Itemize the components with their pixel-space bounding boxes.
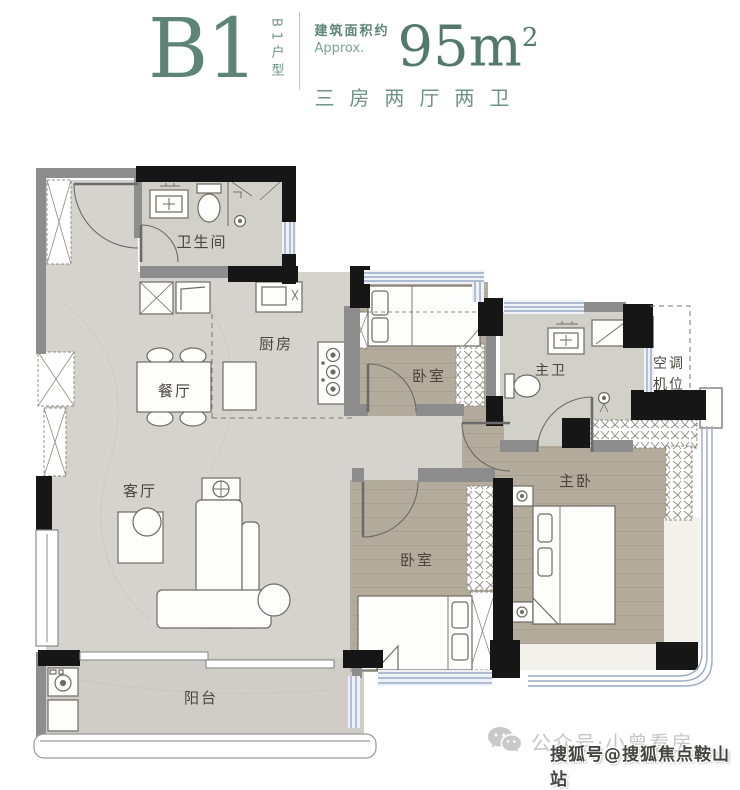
label-ac-line2: 机位: [653, 377, 685, 393]
label-master-bedroom: 主卧: [559, 472, 593, 490]
unit-name: B1: [148, 4, 256, 96]
layout-description: 三房两厅两卫: [314, 82, 538, 111]
label-bedroom-bottom: 卧室: [400, 551, 434, 569]
label-living: 客厅: [123, 482, 157, 500]
sohu-watermark: 搜狐号@搜狐焦点鞍山站: [550, 740, 740, 790]
plan-header: B1 B1户型 建筑面积约 Approx. 95m2 三房两厅两卫: [148, 4, 538, 111]
area-value: 95m2: [397, 10, 538, 76]
living-window: [36, 530, 58, 646]
label-bedroom-top: 卧室: [412, 367, 446, 385]
floor-plan: 卫生间 厨房 餐厅 客厅 阳台 卧室 主卫 主卧 卧室 空调 机位: [0, 150, 740, 768]
area-block: 建筑面积约 Approx. 95m2 三房两厅两卫: [314, 10, 538, 111]
area-label-en: Approx.: [314, 41, 389, 56]
label-ac-line1: 空调: [653, 356, 685, 372]
header-divider: [299, 12, 300, 90]
bedroom-top-bed: [360, 286, 482, 346]
label-balcony: 阳台: [184, 689, 218, 707]
wechat-icon: [487, 726, 523, 756]
label-dining: 餐厅: [158, 382, 192, 400]
unit-type-vertical-label: B1户型: [266, 18, 285, 98]
label-kitchen: 厨房: [259, 335, 293, 353]
label-bathroom: 卫生间: [176, 233, 227, 251]
balcony-railing: [34, 734, 376, 758]
label-master-bath: 主卫: [535, 363, 567, 379]
balcony-fixtures: [48, 668, 78, 731]
area-label-cn: 建筑面积约: [314, 20, 389, 39]
